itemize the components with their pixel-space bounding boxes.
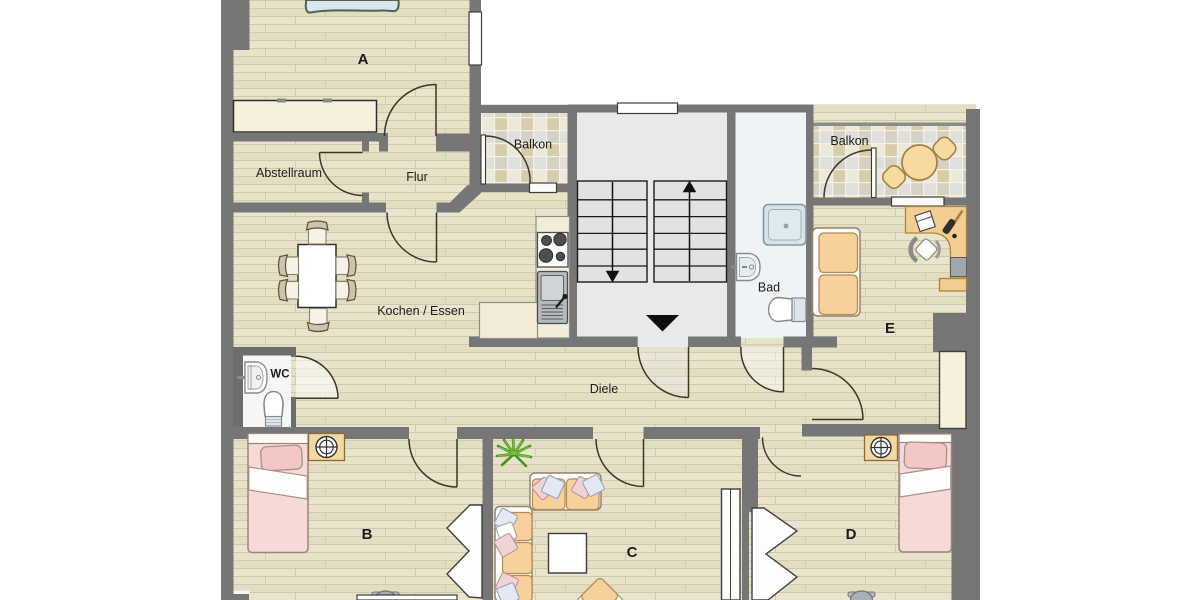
svg-text:Abstellraum: Abstellraum [256, 166, 322, 180]
svg-text:A: A [358, 51, 369, 68]
svg-text:Flur: Flur [406, 170, 428, 184]
svg-text:WC: WC [270, 369, 289, 381]
svg-text:D: D [846, 526, 857, 543]
svg-text:Balkon: Balkon [514, 138, 552, 152]
svg-text:Balkon: Balkon [830, 134, 868, 148]
svg-text:B: B [362, 526, 373, 543]
svg-text:Diele: Diele [590, 382, 619, 396]
svg-text:C: C [627, 544, 638, 561]
svg-text:E: E [885, 320, 895, 337]
svg-text:Kochen / Essen: Kochen / Essen [377, 304, 465, 318]
svg-text:Bad: Bad [758, 281, 780, 295]
